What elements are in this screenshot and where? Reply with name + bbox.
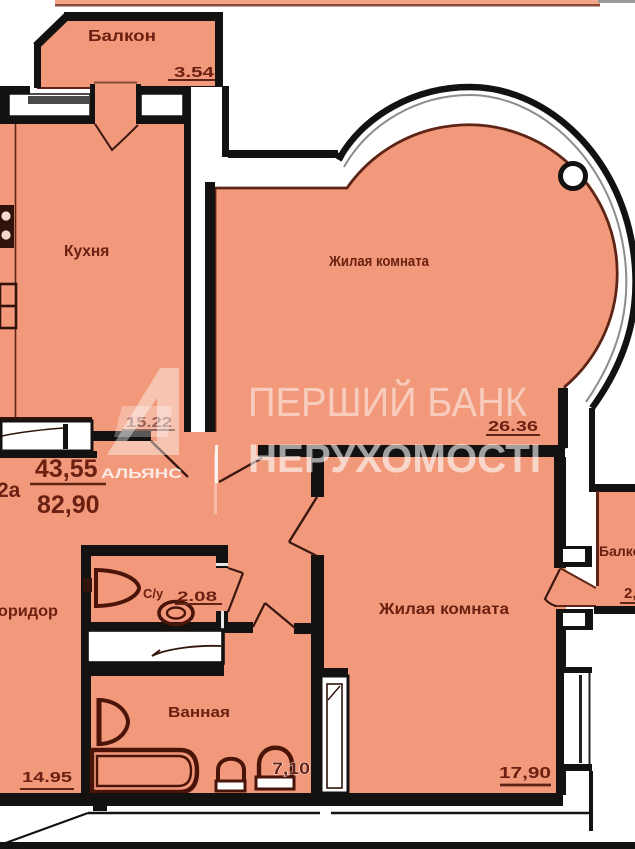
svg-text:17,90: 17,90 bbox=[499, 765, 551, 782]
svg-text:14.95: 14.95 bbox=[22, 769, 72, 786]
svg-text:Жилая комната: Жилая комната bbox=[328, 254, 430, 270]
svg-text:7,10: 7,10 bbox=[272, 759, 310, 778]
svg-text:Балкон: Балкон bbox=[599, 543, 635, 559]
svg-text:НЕРУХОМОСТІ: НЕРУХОМОСТІ bbox=[248, 437, 541, 481]
svg-text:Жилая комната: Жилая комната bbox=[378, 601, 510, 618]
svg-text:2а: 2а bbox=[0, 479, 21, 502]
svg-text:АЛЬЯНС: АЛЬЯНС bbox=[101, 466, 182, 481]
svg-text:С/у: С/у bbox=[143, 586, 164, 601]
svg-text:Ванная: Ванная bbox=[168, 704, 230, 721]
svg-text:Кухня: Кухня bbox=[64, 243, 109, 260]
svg-text:2.08: 2.08 bbox=[177, 588, 217, 604]
svg-text:2,1: 2,1 bbox=[624, 585, 635, 602]
svg-text:3.54: 3.54 bbox=[174, 64, 215, 81]
svg-text:82,90: 82,90 bbox=[37, 491, 100, 519]
svg-text:43,55: 43,55 bbox=[35, 455, 98, 483]
svg-text:ПЕРШИЙ БАНК: ПЕРШИЙ БАНК bbox=[248, 379, 527, 425]
svg-text:Балкон: Балкон bbox=[88, 28, 156, 45]
svg-text:Коридор: Коридор bbox=[0, 603, 58, 620]
